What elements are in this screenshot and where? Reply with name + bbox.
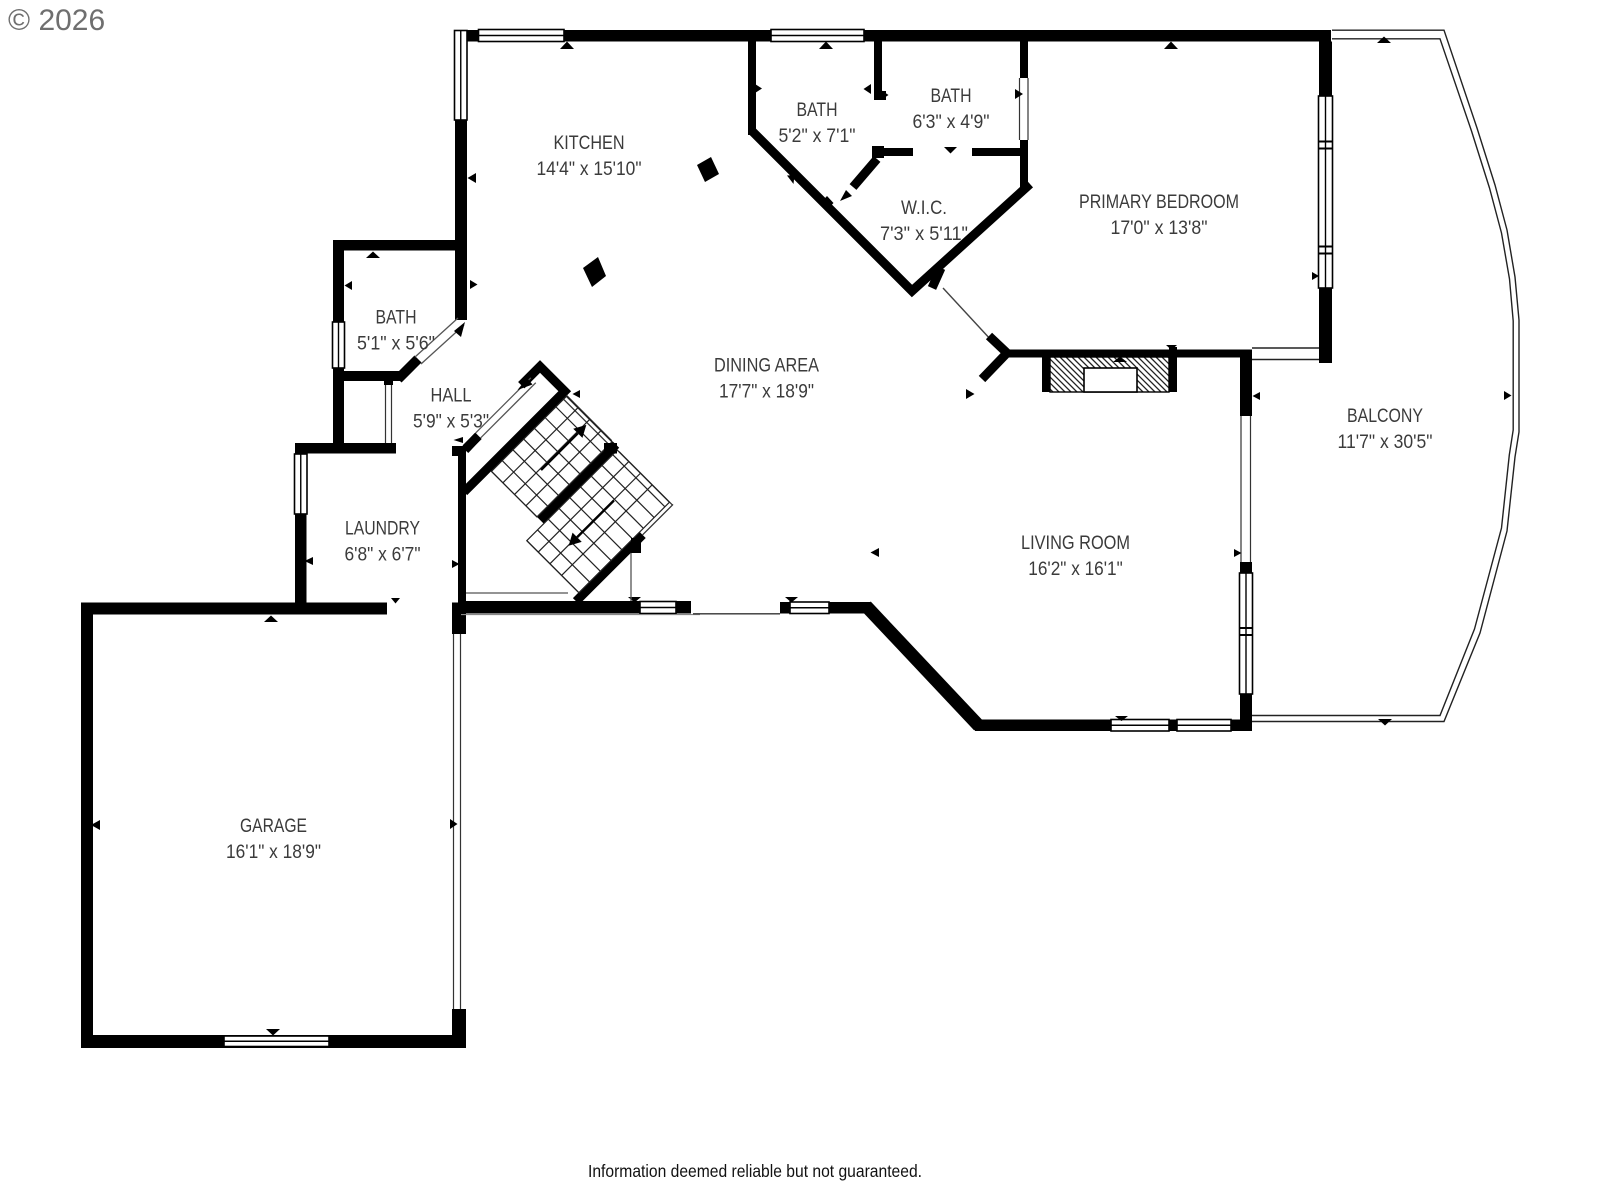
svg-text:17'0" x 13'8": 17'0" x 13'8": [1111, 217, 1208, 239]
svg-text:GARAGE: GARAGE: [240, 815, 307, 837]
svg-text:16'1" x 18'9": 16'1" x 18'9": [226, 841, 321, 863]
svg-text:16'2" x 16'1": 16'2" x 16'1": [1028, 558, 1123, 580]
svg-text:6'8" x 6'7": 6'8" x 6'7": [345, 543, 421, 565]
svg-text:W.I.C.: W.I.C.: [901, 197, 947, 219]
svg-text:11'7" x 30'5": 11'7" x 30'5": [1338, 431, 1433, 453]
svg-text:BATH: BATH: [931, 85, 972, 107]
svg-text:5'1" x 5'6": 5'1" x 5'6": [357, 332, 435, 354]
svg-text:6'3" x 4'9": 6'3" x 4'9": [913, 111, 990, 133]
svg-text:HALL: HALL: [431, 385, 472, 407]
svg-text:KITCHEN: KITCHEN: [554, 132, 625, 154]
svg-text:7'3" x 5'11": 7'3" x 5'11": [880, 223, 968, 245]
svg-text:LIVING ROOM: LIVING ROOM: [1021, 532, 1130, 554]
svg-text:14'4" x 15'10": 14'4" x 15'10": [537, 158, 642, 180]
svg-text:DINING AREA: DINING AREA: [714, 355, 819, 377]
svg-text:© 2026: © 2026: [8, 4, 105, 37]
svg-text:BALCONY: BALCONY: [1347, 405, 1423, 427]
svg-text:5'9" x 5'3": 5'9" x 5'3": [413, 410, 489, 432]
svg-text:BATH: BATH: [797, 99, 838, 121]
svg-text:17'7" x 18'9": 17'7" x 18'9": [719, 380, 814, 402]
svg-text:5'2" x 7'1": 5'2" x 7'1": [779, 125, 856, 147]
svg-text:LAUNDRY: LAUNDRY: [345, 518, 420, 540]
svg-text:Information deemed reliable bu: Information deemed reliable but not guar…: [588, 1161, 922, 1181]
svg-text:PRIMARY BEDROOM: PRIMARY BEDROOM: [1079, 191, 1239, 213]
svg-text:BATH: BATH: [376, 307, 417, 329]
